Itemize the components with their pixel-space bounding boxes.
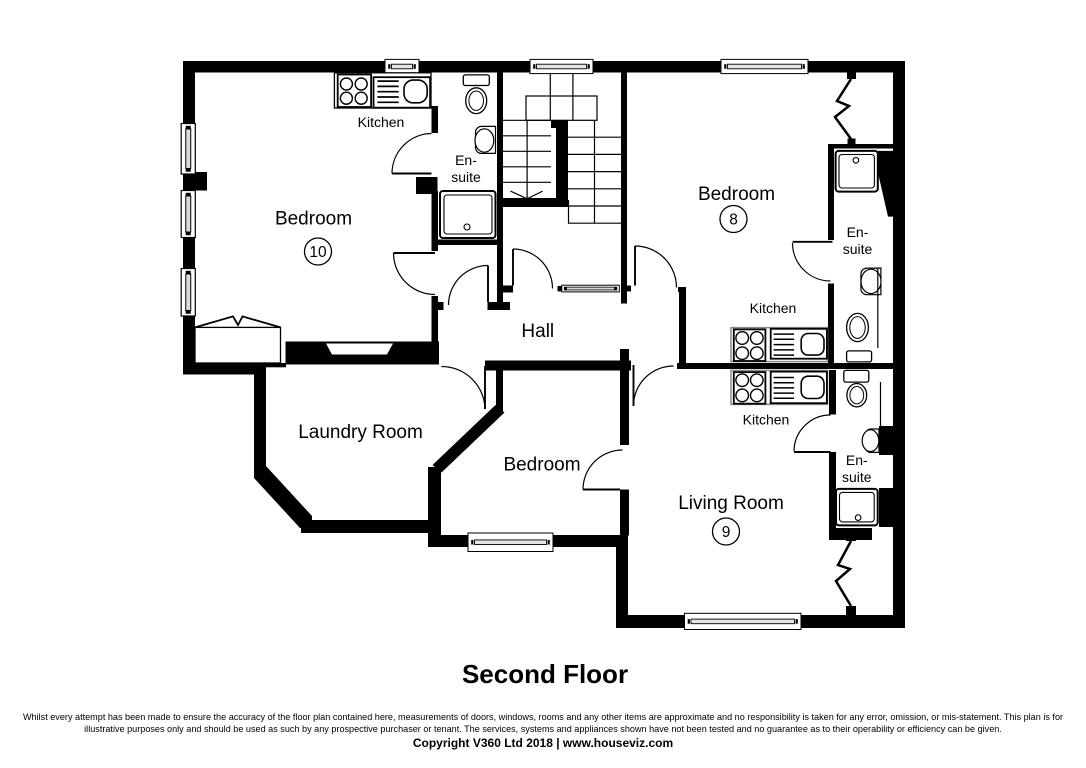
svg-text:Laundry Room: Laundry Room: [298, 422, 423, 443]
svg-text:suite: suite: [843, 241, 873, 257]
svg-text:Bedroom: Bedroom: [275, 209, 352, 230]
svg-text:Bedroom: Bedroom: [698, 184, 775, 205]
svg-text:En-: En-: [455, 152, 477, 168]
svg-text:En-: En-: [846, 452, 868, 468]
svg-text:illustrative purposes only and: illustrative purposes only and should be…: [84, 724, 1002, 734]
svg-text:suite: suite: [842, 469, 872, 485]
svg-text:En-: En-: [847, 224, 869, 240]
svg-text:9: 9: [722, 524, 731, 541]
svg-text:suite: suite: [451, 169, 481, 185]
svg-text:10: 10: [309, 244, 327, 261]
svg-text:Kitchen: Kitchen: [743, 412, 790, 428]
svg-text:Second Floor: Second Floor: [462, 659, 628, 689]
svg-text:8: 8: [729, 212, 738, 229]
svg-text:Living Room: Living Room: [678, 493, 784, 514]
svg-text:Hall: Hall: [521, 321, 554, 342]
svg-text:Kitchen: Kitchen: [358, 114, 405, 130]
svg-text:Whilst every attempt has been: Whilst every attempt has been made to en…: [23, 712, 1063, 722]
svg-text:Bedroom: Bedroom: [503, 455, 580, 476]
svg-text:Copyright V360 Ltd 2018 | www.: Copyright V360 Ltd 2018 | www.houseviz.c…: [413, 736, 673, 750]
svg-text:Kitchen: Kitchen: [750, 300, 797, 316]
